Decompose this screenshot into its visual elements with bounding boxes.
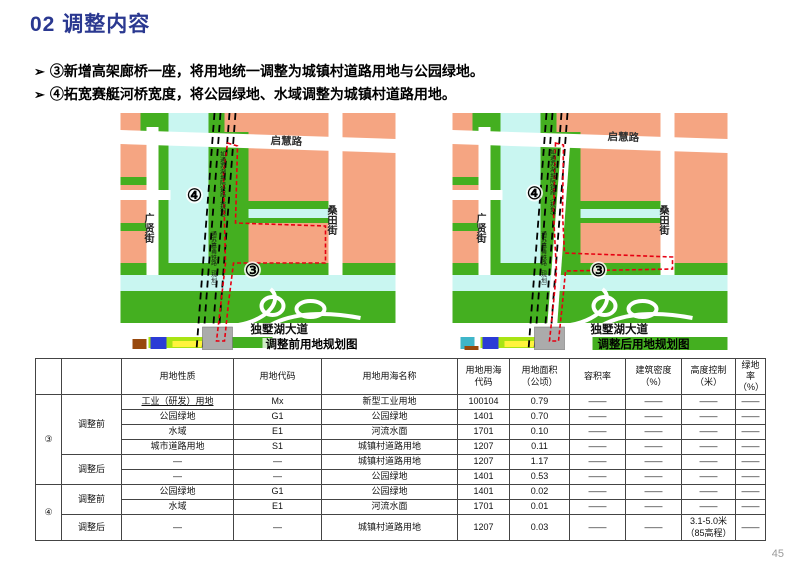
table-cell: —— xyxy=(570,500,626,515)
table-cell: 1207 xyxy=(458,515,510,541)
table-cell: —— xyxy=(570,485,626,500)
header-far: 容积率 xyxy=(570,359,626,395)
road-label-top: 启慧路 xyxy=(270,134,302,148)
rail-label-2: 通苏嘉甬铁路（规划） xyxy=(210,230,217,289)
table-cell: —— xyxy=(682,470,736,485)
header-density: 建筑密度 （%） xyxy=(626,359,682,395)
marker-4: ④ xyxy=(187,186,202,205)
table-cell: 河流水面 xyxy=(322,500,458,515)
group-cell: ③ xyxy=(36,395,62,485)
table-cell: 1401 xyxy=(458,485,510,500)
bullet-text: ④拓宽赛艇河桥宽度，将公园绿地、水域调整为城镇村道路用地。 xyxy=(50,83,456,106)
marker-4: ④ xyxy=(527,184,542,203)
table-cell: 城镇村道路用地 xyxy=(322,440,458,455)
table-cell: 100104 xyxy=(458,395,510,410)
table-cell: —— xyxy=(626,485,682,500)
table-cell: 水域 xyxy=(122,425,234,440)
table-cell: — xyxy=(234,470,322,485)
phase-cell: 调整后 xyxy=(62,455,122,485)
table-cell: —— xyxy=(682,410,736,425)
phase-cell: 调整前 xyxy=(62,485,122,515)
table-cell: 新型工业用地 xyxy=(322,395,458,410)
table-row: 调整后 — — 城镇村道路用地 1207 1.17 —— —— —— —— xyxy=(36,455,766,470)
table-cell: —— xyxy=(736,500,766,515)
table-cell: 公园绿地 xyxy=(122,410,234,425)
table-cell: 公园绿地 xyxy=(122,485,234,500)
map-after-adjustment: 启慧路 广贤街 桑田街 独墅湖大道 如通苏湖城际铁路（规划） 通苏嘉甬铁路（规划… xyxy=(451,113,729,350)
header-empty xyxy=(62,359,122,395)
table-row: 水域 E1 河流水面 1701 0.01 —— —— —— —— xyxy=(36,500,766,515)
arrow-bullet-icon: ➢ xyxy=(34,83,45,106)
table-cell: 0.53 xyxy=(510,470,570,485)
table-cell: 公园绿地 xyxy=(322,485,458,500)
map-caption: 调整后用地规划图 xyxy=(598,337,690,350)
table-cell: 城镇村道路用地 xyxy=(322,455,458,470)
table-cell: —— xyxy=(736,395,766,410)
table-row: ④ 调整前 公园绿地 G1 公园绿地 1401 0.02 —— —— —— —— xyxy=(36,485,766,500)
table-row: 水域 E1 河流水面 1701 0.10 —— —— —— —— xyxy=(36,425,766,440)
header-code: 用地代码 xyxy=(234,359,322,395)
rail-label-2: 通苏嘉甬铁路（规划） xyxy=(540,230,547,289)
table-cell: —— xyxy=(626,410,682,425)
table-cell: 0.10 xyxy=(510,425,570,440)
rail-label-1: 如通苏湖城际铁路（规划） xyxy=(219,150,226,221)
table-cell: — xyxy=(122,515,234,541)
table-cell: —— xyxy=(626,500,682,515)
header-empty xyxy=(36,359,62,395)
header-prop: 用地性质 xyxy=(122,359,234,395)
table-row: — — 公园绿地 1401 0.53 —— —— —— —— xyxy=(36,470,766,485)
table-header-row: 用地性质 用地代码 用地用海名称 用地用海 代码 用地面积 （公顷） 容积率 建… xyxy=(36,359,766,395)
table-cell: —— xyxy=(736,485,766,500)
table-cell: 0.02 xyxy=(510,485,570,500)
table-cell: —— xyxy=(682,500,736,515)
table-cell: 工业（研发）用地 xyxy=(122,395,234,410)
road-label-bottom: 独墅湖大道 xyxy=(591,322,649,336)
group-cell: ④ xyxy=(36,485,62,541)
table-cell: —— xyxy=(682,440,736,455)
table-cell: — xyxy=(122,470,234,485)
table-cell: —— xyxy=(626,455,682,470)
table-cell: 0.01 xyxy=(510,500,570,515)
table-cell: 城市道路用地 xyxy=(122,440,234,455)
bullet-list: ➢ ③新增高架廊桥一座，将用地统一调整为城镇村道路用地与公园绿地。 ➢ ④拓宽赛… xyxy=(34,60,484,106)
table-cell: 1701 xyxy=(458,425,510,440)
table-cell: —— xyxy=(736,410,766,425)
table-cell: 1207 xyxy=(458,440,510,455)
table-cell: 公园绿地 xyxy=(322,410,458,425)
table-cell: 水域 xyxy=(122,500,234,515)
table-cell: —— xyxy=(570,515,626,541)
table-cell: —— xyxy=(682,425,736,440)
table-cell: —— xyxy=(570,455,626,470)
slide: 02 调整内容 ➢ ③新增高架廊桥一座，将用地统一调整为城镇村道路用地与公园绿地… xyxy=(0,0,800,566)
table-cell: 3.1-5.0米 （85高程） xyxy=(682,515,736,541)
table-cell: 1401 xyxy=(458,410,510,425)
table-cell: —— xyxy=(626,440,682,455)
header-area: 用地面积 （公顷） xyxy=(510,359,570,395)
table-cell: —— xyxy=(626,515,682,541)
table-cell: S1 xyxy=(234,440,322,455)
table-cell: —— xyxy=(736,455,766,470)
table-cell: 城镇村道路用地 xyxy=(322,515,458,541)
table-cell: 1401 xyxy=(458,470,510,485)
header-sea-code: 用地用海 代码 xyxy=(458,359,510,395)
table-cell: 0.79 xyxy=(510,395,570,410)
phase-cell: 调整后 xyxy=(62,515,122,541)
landuse-table: 用地性质 用地代码 用地用海名称 用地用海 代码 用地面积 （公顷） 容积率 建… xyxy=(35,358,766,541)
header-sea-name: 用地用海名称 xyxy=(322,359,458,395)
table-cell: — xyxy=(122,455,234,470)
table-cell: — xyxy=(234,455,322,470)
marker-3: ③ xyxy=(245,261,260,280)
bullet-text: ③新增高架廊桥一座，将用地统一调整为城镇村道路用地与公园绿地。 xyxy=(50,60,484,83)
header-height: 高度控制 （米） xyxy=(682,359,736,395)
bullet-item: ➢ ③新增高架廊桥一座，将用地统一调整为城镇村道路用地与公园绿地。 xyxy=(34,60,484,83)
road-label-bottom: 独墅湖大道 xyxy=(251,322,309,336)
table-cell: —— xyxy=(570,395,626,410)
table-cell: —— xyxy=(626,470,682,485)
table-cell: —— xyxy=(570,425,626,440)
map-before-adjustment: 启慧路 广贤街 桑田街 独墅湖大道 如通苏湖城际铁路（规划） 通苏嘉甬铁路（规划… xyxy=(119,113,397,350)
table-cell: 河流水面 xyxy=(322,425,458,440)
table-row: ③ 调整前 工业（研发）用地 Mx 新型工业用地 100104 0.79 —— … xyxy=(36,395,766,410)
bullet-item: ➢ ④拓宽赛艇河桥宽度，将公园绿地、水域调整为城镇村道路用地。 xyxy=(34,83,484,106)
map-caption: 调整前用地规划图 xyxy=(266,337,358,350)
table-cell: 1701 xyxy=(458,500,510,515)
table-cell: —— xyxy=(626,425,682,440)
table-row: 公园绿地 G1 公园绿地 1401 0.70 —— —— —— —— xyxy=(36,410,766,425)
page-title: 02 调整内容 xyxy=(30,8,150,38)
rail-label-1: 如通苏湖城际铁路（规划） xyxy=(549,148,556,219)
table-cell: Mx xyxy=(234,395,322,410)
arrow-bullet-icon: ➢ xyxy=(34,60,45,83)
table-row: 城市道路用地 S1 城镇村道路用地 1207 0.11 —— —— —— —— xyxy=(36,440,766,455)
table-cell: E1 xyxy=(234,500,322,515)
table-cell: —— xyxy=(626,395,682,410)
table-cell: 公园绿地 xyxy=(322,470,458,485)
marker-3: ③ xyxy=(591,261,606,280)
table-cell: —— xyxy=(682,485,736,500)
table-cell: —— xyxy=(736,440,766,455)
table-cell: 0.11 xyxy=(510,440,570,455)
table-cell: G1 xyxy=(234,410,322,425)
road-label-top: 启慧路 xyxy=(607,130,639,144)
table-cell: 0.03 xyxy=(510,515,570,541)
table-cell: 1.17 xyxy=(510,455,570,470)
header-green: 绿地率 （%） xyxy=(736,359,766,395)
page-number: 45 xyxy=(772,548,784,560)
table-cell: G1 xyxy=(234,485,322,500)
table-cell: —— xyxy=(570,410,626,425)
table-cell: —— xyxy=(736,470,766,485)
table-cell: E1 xyxy=(234,425,322,440)
table-cell: —— xyxy=(682,455,736,470)
table-cell: — xyxy=(234,515,322,541)
table-cell: —— xyxy=(736,515,766,541)
table-cell: —— xyxy=(570,440,626,455)
phase-cell: 调整前 xyxy=(62,395,122,455)
table-cell: 0.70 xyxy=(510,410,570,425)
table-cell: —— xyxy=(682,395,736,410)
table-row: 调整后 — — 城镇村道路用地 1207 0.03 —— —— 3.1-5.0米… xyxy=(36,515,766,541)
table-cell: —— xyxy=(736,425,766,440)
table-cell: 1207 xyxy=(458,455,510,470)
table-cell: —— xyxy=(570,470,626,485)
